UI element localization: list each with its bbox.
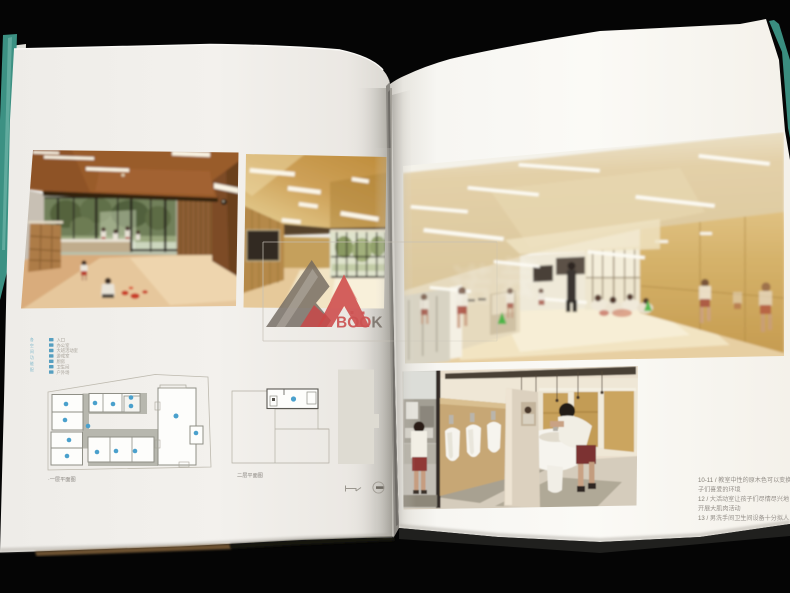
svg-text:开展大肌肉活动: 开展大肌肉活动 (698, 505, 741, 513)
svg-text:户外场: 户外场 (57, 369, 71, 376)
svg-text:间: 间 (30, 349, 34, 354)
svg-text:诺: 诺 (450, 262, 492, 309)
svg-text:10-11 / 教室中性的原木色可以变换: 10-11 / 教室中性的原木色可以变换 (698, 476, 790, 484)
svg-text:BOOK: BOOK (336, 315, 383, 332)
svg-text:配: 配 (30, 367, 34, 372)
svg-text:空: 空 (30, 343, 34, 348)
svg-text:13 / 男洗手间卫生间设备十分拟人: 13 / 男洗手间卫生间设备十分拟人 (698, 514, 789, 522)
svg-text:能: 能 (30, 361, 34, 366)
svg-text:入口: 入口 (57, 337, 66, 342)
svg-text:二层平面图: 二层平面图 (237, 472, 263, 479)
svg-text:各: 各 (30, 337, 34, 342)
svg-text:·一层平面图: ·一层平面图 (48, 476, 76, 483)
svg-text:功: 功 (30, 355, 34, 360)
svg-text:12 / 大活动室让孩子们尽情尽兴地: 12 / 大活动室让孩子们尽情尽兴地 (698, 495, 789, 503)
svg-text:子们喜爱的环境: 子们喜爱的环境 (698, 486, 741, 494)
svg-text:芸: 芸 (495, 255, 537, 302)
